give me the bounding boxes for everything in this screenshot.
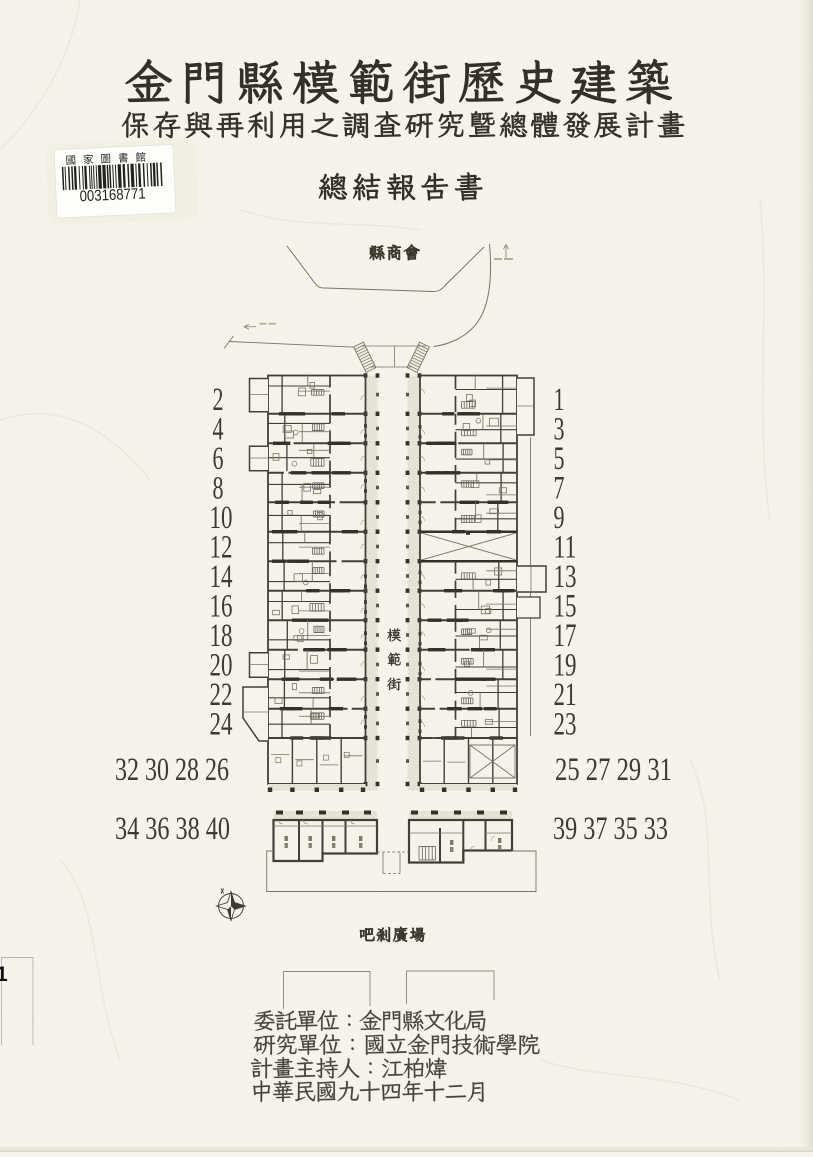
svg-text:39 37 35 33: 39 37 35 33 bbox=[553, 811, 668, 847]
svg-text:34 36 38 40: 34 36 38 40 bbox=[115, 811, 230, 847]
svg-text:23: 23 bbox=[554, 706, 577, 742]
svg-text:003168771: 003168771 bbox=[79, 185, 146, 205]
svg-text:1: 1 bbox=[0, 963, 8, 986]
svg-text:24: 24 bbox=[210, 706, 233, 742]
svg-text:25 27 29 31: 25 27 29 31 bbox=[555, 752, 672, 788]
svg-text:32 30 28 26: 32 30 28 26 bbox=[115, 752, 229, 788]
